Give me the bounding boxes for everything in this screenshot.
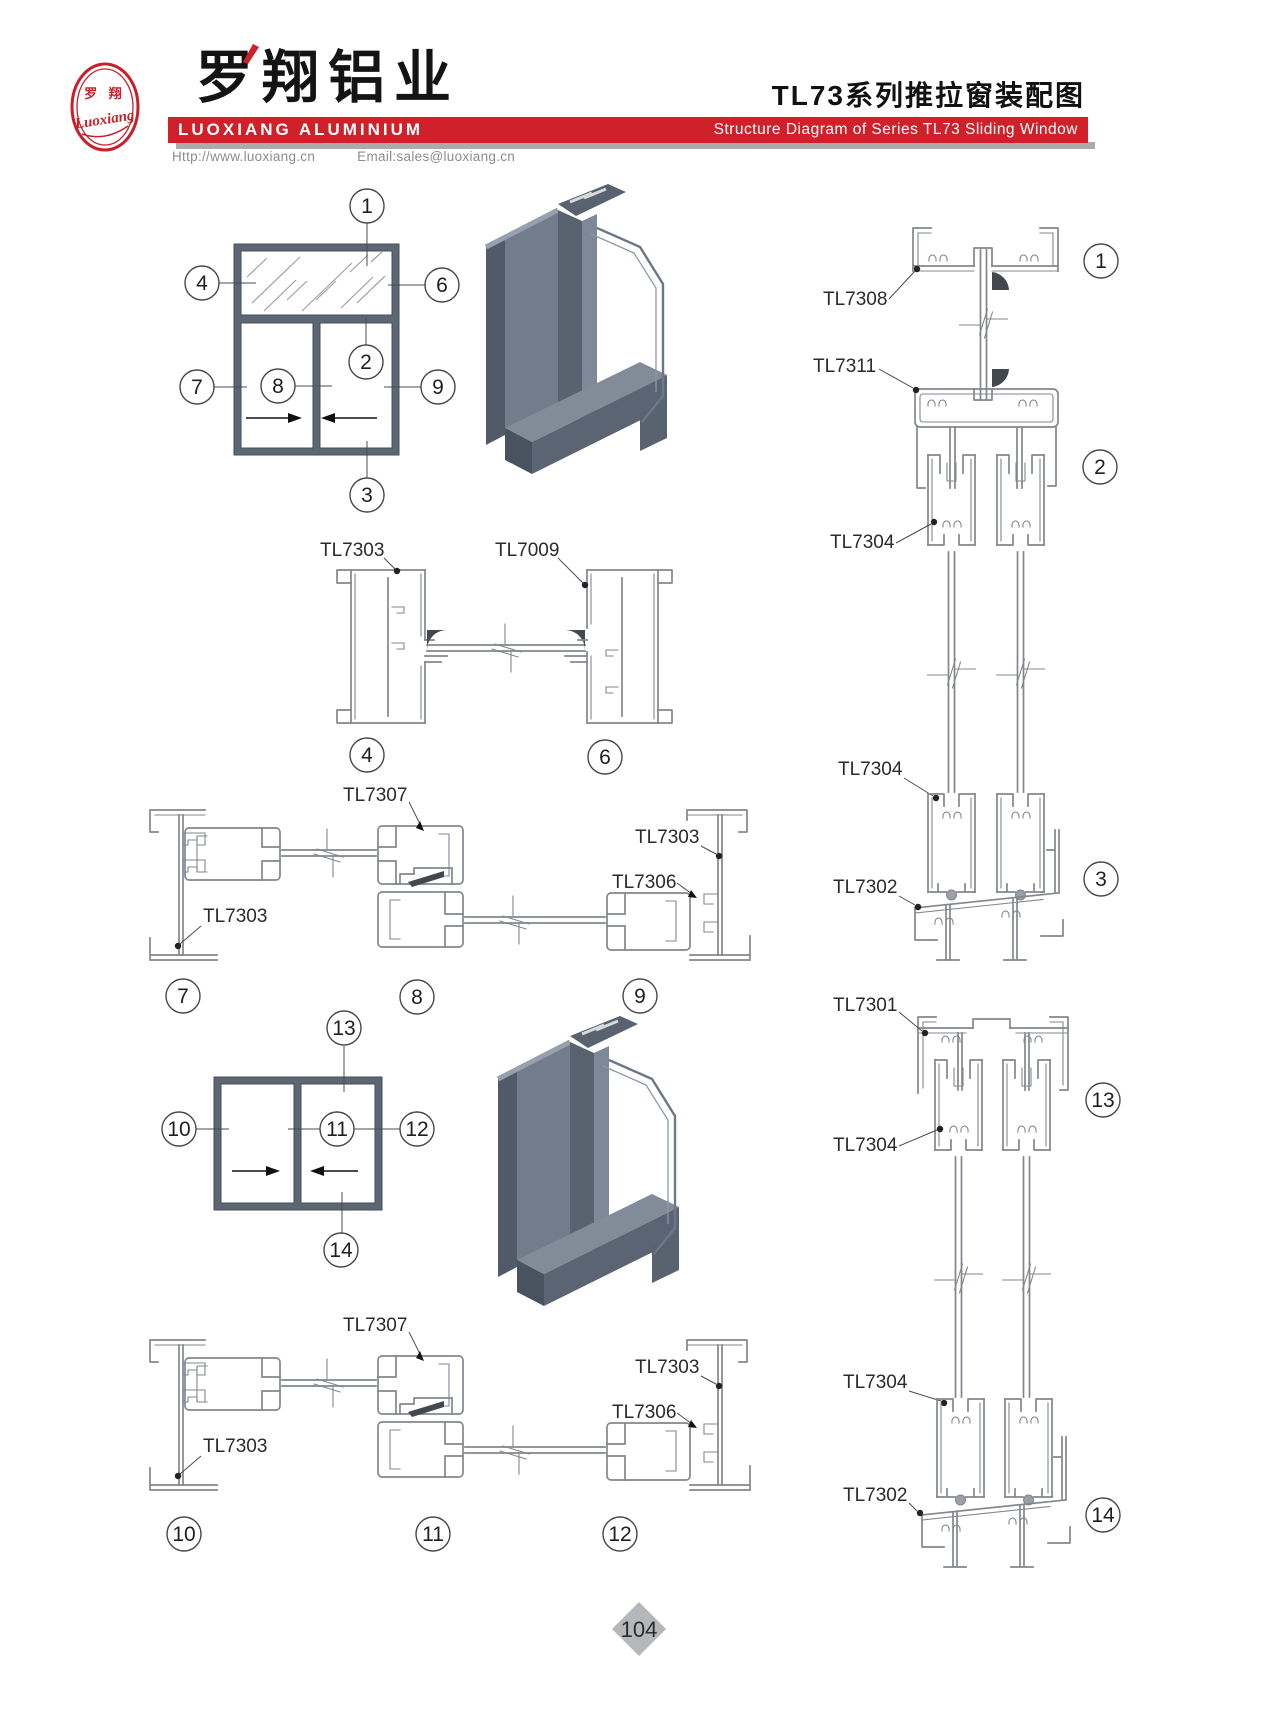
sash-top-profile-tl7304 (1003, 1060, 1050, 1150)
section-7-8-9-drawing (150, 785, 750, 960)
part-label-tl7303: TL7303 (320, 540, 400, 574)
part-label-tl7304-upper: TL7304 (830, 519, 937, 553)
svg-text:TL7304: TL7304 (830, 532, 895, 553)
svg-text:2: 2 (1094, 456, 1106, 479)
slide-direction-arrows (246, 413, 377, 423)
callout-13: 13 (327, 1011, 361, 1045)
callout-14: 14 (324, 1233, 358, 1267)
corner-profile-render-1 (486, 184, 667, 474)
glass-pane-upper (981, 250, 987, 400)
svg-text:TL7308: TL7308 (823, 289, 887, 310)
callout-10-section: 10 (167, 1517, 201, 1551)
vertical-section-1-2-3: TL7308 1 TL7311 2 TL7304 (813, 228, 1118, 960)
callout-7: 7 (180, 370, 214, 404)
glass-break-symbol (997, 659, 1045, 688)
part-label-tl7009: TL7009 (495, 540, 588, 588)
part-label-tl7308: TL7308 (823, 266, 920, 310)
callout-2-section: 2 (1083, 450, 1117, 484)
mullion-profile-tl7303 (337, 570, 447, 723)
svg-text:TL7311: TL7311 (813, 356, 876, 377)
callout-12: 12 (400, 1112, 434, 1146)
sash-profile-tl7009 (565, 570, 672, 723)
callout-3: 3 (350, 478, 384, 512)
section-10-11-12-drawing (150, 1315, 750, 1490)
part-label-tl7304-lower: TL7304 (838, 759, 939, 801)
section-4-6: TL7303 TL7009 4 6 (320, 540, 672, 774)
page-number: 104 (621, 1617, 658, 1642)
sash-top-profile-tl7304 (928, 455, 975, 545)
svg-text:TL7301: TL7301 (833, 995, 897, 1016)
glass-break-symbol (1003, 1264, 1051, 1293)
sash-top-profile-tl7304 (997, 455, 1044, 545)
part-label-tl7304-upper: TL7304 (833, 1126, 943, 1156)
svg-text:TL7304: TL7304 (843, 1372, 908, 1393)
window-diagram-1: 1 4 6 2 7 8 9 3 (180, 189, 459, 512)
svg-text:4: 4 (361, 744, 373, 767)
part-label-tl7302: TL7302 (833, 877, 921, 910)
transom-profile-tl7311 (915, 389, 1058, 488)
callout-7-section: 7 (166, 979, 200, 1013)
svg-text:8: 8 (411, 986, 423, 1009)
callout-3-section: 3 (1084, 862, 1118, 896)
callout-1-section: 1 (1084, 244, 1118, 278)
part-label-tl7304-lower: TL7304 (843, 1372, 947, 1406)
svg-text:TL7304: TL7304 (833, 1135, 898, 1156)
callout-4-section: 4 (350, 738, 384, 772)
svg-text:7: 7 (177, 985, 189, 1008)
svg-text:11: 11 (422, 1523, 444, 1546)
corner-profile-render-2 (498, 1016, 679, 1306)
svg-text:3: 3 (1095, 868, 1107, 891)
glass-break-symbol (928, 659, 976, 688)
svg-text:13: 13 (332, 1017, 355, 1040)
svg-text:12: 12 (405, 1118, 428, 1141)
svg-text:11: 11 (326, 1118, 348, 1141)
svg-text:6: 6 (599, 746, 611, 769)
glazing-gasket (992, 369, 1009, 387)
part-label-tl7311: TL7311 (813, 356, 919, 393)
svg-text:14: 14 (329, 1239, 353, 1262)
callout-12-section: 12 (603, 1517, 637, 1551)
svg-text:9: 9 (432, 376, 444, 399)
vertical-section-13-14: TL7301 13 TL7304 TL7304 TL7302 (833, 995, 1120, 1567)
head-profile-tl7308 (913, 228, 1058, 271)
callout-6-section: 6 (588, 740, 622, 774)
svg-text:1: 1 (1095, 250, 1107, 273)
svg-text:2: 2 (360, 351, 372, 374)
svg-text:TL7302: TL7302 (843, 1485, 907, 1506)
sash-bottom-profile-tl7304 (937, 1399, 984, 1505)
glazing-gasket (992, 272, 1009, 290)
svg-text:10: 10 (172, 1523, 195, 1546)
glass-panes-lower (949, 552, 1024, 792)
page-number-badge: 104 (612, 1602, 666, 1656)
callout-9-section: 9 (623, 979, 657, 1013)
svg-text:9: 9 (634, 985, 646, 1008)
svg-text:6: 6 (436, 274, 448, 297)
callout-11-section: 11 (416, 1517, 450, 1551)
callout-2: 2 (349, 345, 383, 379)
sill-profile-tl7302 (915, 830, 1063, 960)
sash-bottom-profile-tl7304 (1005, 1399, 1052, 1505)
glass-break-symbol (960, 309, 1008, 338)
callout-10: 10 (162, 1112, 196, 1146)
catalog-page: 罗 翔 Luoxiang 罗翔铝业 TL73系列推拉窗装配图 LUOXIANG … (0, 0, 1277, 1721)
part-label-tl7301: TL7301 (833, 995, 928, 1036)
callout-8: 8 (261, 369, 295, 403)
svg-text:TL7302: TL7302 (833, 877, 897, 898)
callout-6: 6 (425, 268, 459, 302)
glass-break-symbol (935, 1264, 983, 1293)
window-diagram-2: 13 10 11 12 14 (162, 1011, 434, 1267)
sash-bottom-profile-tl7304 (928, 794, 975, 900)
svg-text:12: 12 (608, 1523, 631, 1546)
technical-drawings: TL7307 TL7303 TL7303 TL7306 (0, 0, 1277, 1721)
callout-1: 1 (350, 189, 384, 223)
glass-break-symbol (492, 624, 521, 672)
svg-text:14: 14 (1091, 1504, 1115, 1527)
svg-text:13: 13 (1091, 1089, 1114, 1112)
svg-text:TL7303: TL7303 (320, 540, 384, 561)
glass-panes (956, 1157, 1030, 1397)
svg-text:TL7009: TL7009 (495, 540, 559, 561)
callout-8-section: 8 (400, 980, 434, 1014)
svg-text:7: 7 (191, 376, 203, 399)
glass-hatching (247, 251, 385, 311)
svg-text:1: 1 (361, 195, 373, 218)
svg-text:8: 8 (272, 375, 284, 398)
callout-11: 11 (320, 1112, 354, 1146)
callout-4: 4 (185, 266, 219, 300)
callout-14-section: 14 (1086, 1498, 1120, 1532)
svg-text:3: 3 (361, 484, 373, 507)
svg-text:4: 4 (196, 272, 208, 295)
window-frame (214, 1077, 382, 1210)
glass-pane (427, 645, 585, 651)
callout-9: 9 (421, 370, 455, 404)
svg-text:10: 10 (167, 1118, 190, 1141)
callout-13-section: 13 (1086, 1083, 1120, 1117)
sash-bottom-profile-tl7304 (997, 794, 1044, 900)
part-label-tl7302: TL7302 (843, 1485, 923, 1516)
svg-text:TL7304: TL7304 (838, 759, 903, 780)
